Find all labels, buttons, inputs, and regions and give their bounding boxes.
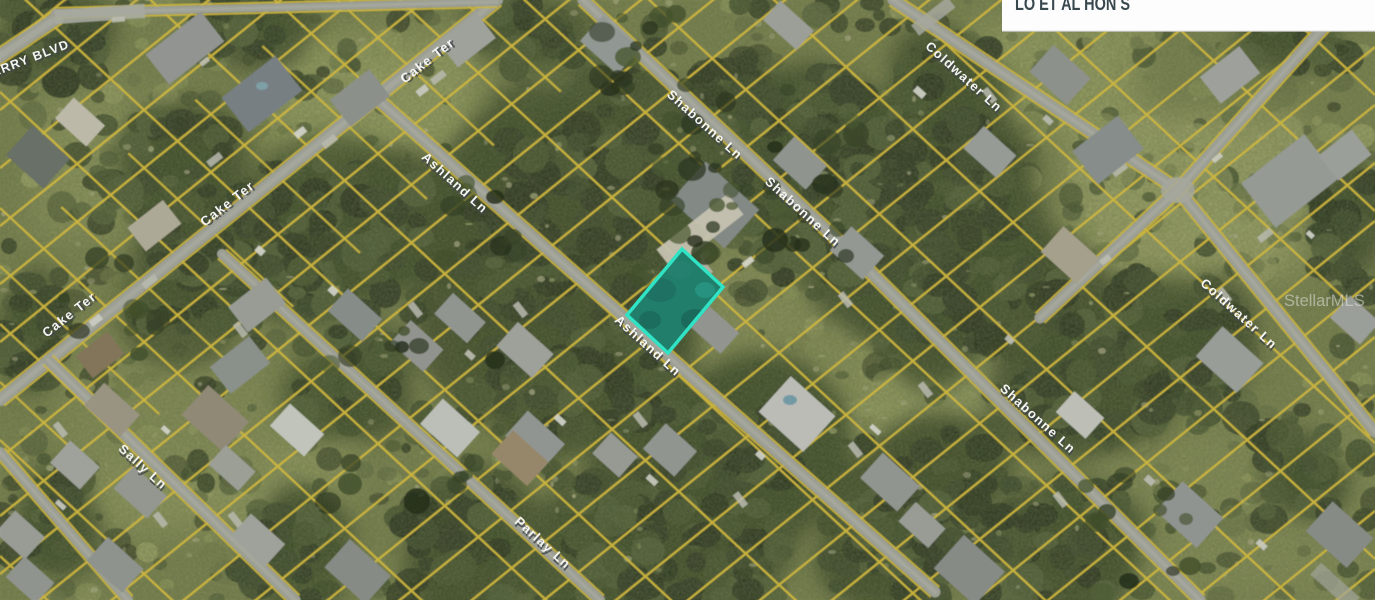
svg-text:StellarMLS: StellarMLS xyxy=(1284,292,1365,310)
svg-text:LO ET AL HON S: LO ET AL HON S xyxy=(1015,0,1130,14)
